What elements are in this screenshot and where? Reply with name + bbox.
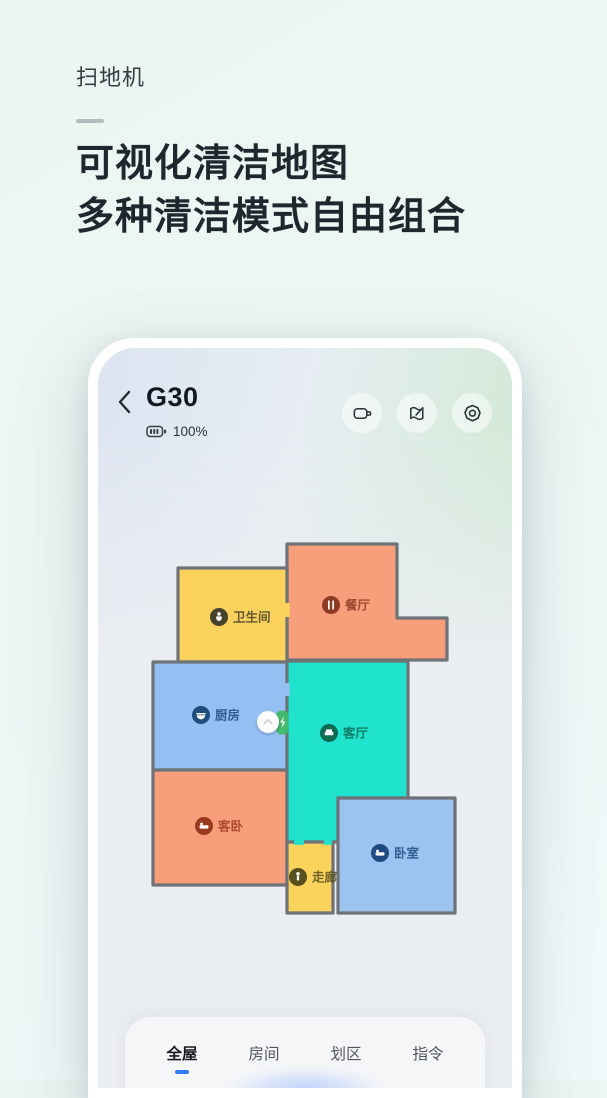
svg-text:客卧: 客卧	[217, 818, 244, 833]
chevron-left-icon	[114, 388, 138, 416]
video-camera-icon	[351, 402, 374, 425]
product-category-label: 扫地机	[76, 60, 466, 92]
sofa-icon	[325, 729, 334, 735]
active-tab-underline	[175, 1070, 189, 1074]
tab-command[interactable]: 指令	[412, 1042, 443, 1074]
door-gap	[324, 839, 332, 844]
divider	[76, 119, 104, 123]
room-chip-corridor: 走廊	[289, 868, 338, 886]
map-edit-icon	[406, 402, 429, 425]
door-gap	[284, 683, 289, 696]
page-title-line2: 多种清洁模式自由组合	[76, 191, 466, 244]
back-button[interactable]	[114, 388, 138, 416]
room-chip-living: 客厅	[320, 724, 369, 742]
device-preview-card: G30 100%	[88, 338, 522, 1098]
room-chip-dining: 餐厅	[322, 596, 371, 614]
room-chip-bathroom: 卫生间	[210, 608, 271, 626]
app-screen: G30 100%	[98, 348, 512, 1088]
svg-text:餐厅: 餐厅	[344, 597, 371, 612]
cleaning-map: 餐厅 卫生间 厨房	[148, 540, 462, 918]
bottom-sheet: 全屋 房间 划区 指令	[125, 1017, 485, 1088]
door-gap	[294, 839, 304, 844]
svg-text:卫生间: 卫生间	[233, 609, 271, 624]
battery-status: 100%	[146, 424, 208, 439]
hero-section: 扫地机 可视化清洁地图 多种清洁模式自由组合	[76, 60, 466, 244]
page-title-line1: 可视化清洁地图	[76, 138, 466, 191]
cleaning-mode-tabs: 全屋 房间 划区 指令	[125, 1017, 485, 1074]
settings-button[interactable]	[452, 393, 492, 433]
svg-text:厨房: 厨房	[215, 707, 240, 722]
camera-button[interactable]	[342, 393, 382, 433]
primary-button-glow	[225, 1067, 385, 1088]
page-title: 可视化清洁地图 多种清洁模式自由组合	[76, 138, 466, 244]
door-gap	[284, 603, 289, 617]
battery-icon	[146, 425, 167, 438]
edit-map-button[interactable]	[397, 393, 437, 433]
device-title: G30	[146, 382, 199, 413]
marketing-page: { "hero": { "eyebrow": "扫地机", "title_lin…	[0, 0, 607, 1080]
svg-text:走廊: 走廊	[312, 869, 338, 884]
battery-percentage: 100%	[173, 424, 208, 439]
room-chip-kitchen: 厨房	[192, 706, 240, 724]
settings-icon	[461, 402, 484, 425]
svg-text:客厅: 客厅	[342, 725, 369, 740]
tab-whole-house[interactable]: 全屋	[166, 1042, 197, 1074]
svg-text:卧室: 卧室	[394, 845, 420, 860]
room-chip-bedroom: 卧室	[371, 844, 420, 862]
room-chip-guest-bedroom: 客卧	[195, 817, 244, 835]
header-toolbar	[342, 393, 492, 433]
